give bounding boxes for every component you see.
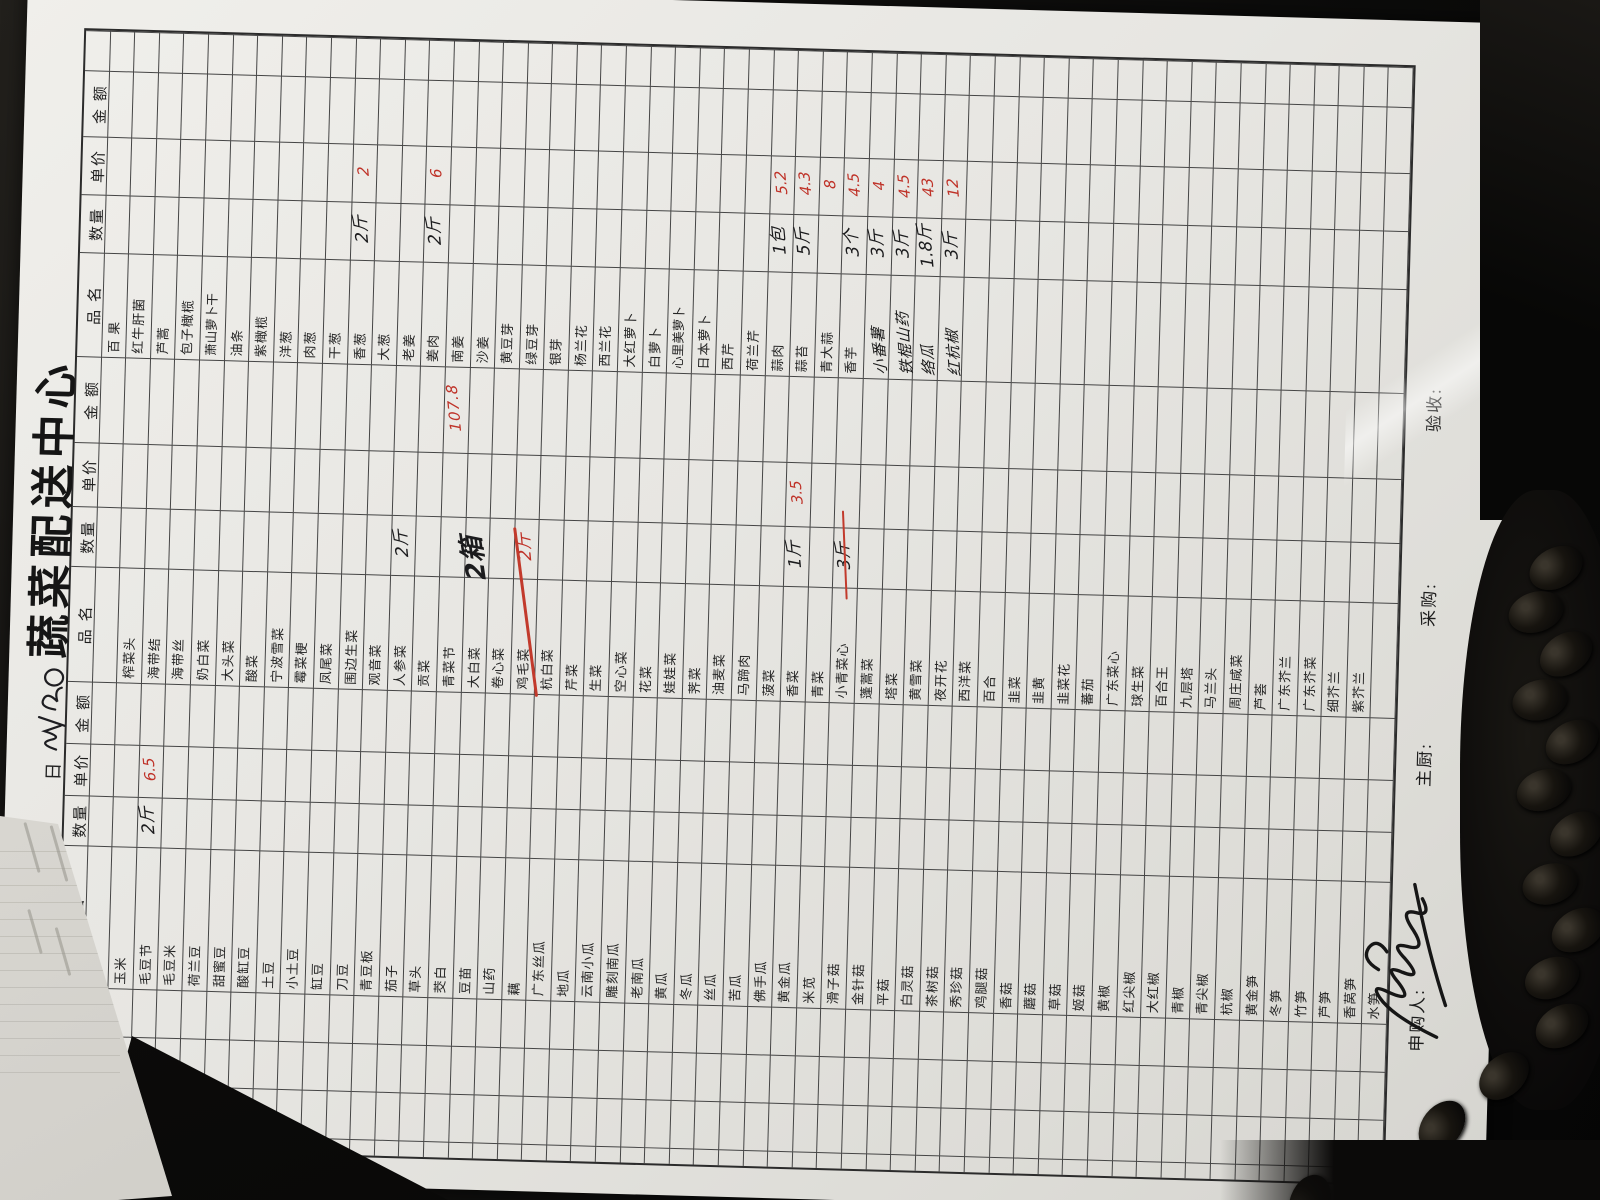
blank-cell bbox=[673, 1004, 699, 1053]
item-name: 蒜苔 bbox=[794, 344, 810, 372]
item-qty-cell bbox=[292, 512, 318, 573]
edge-cell bbox=[355, 38, 381, 79]
blank-cell bbox=[1137, 1113, 1163, 1162]
item-name: 缸豆 bbox=[309, 962, 325, 990]
item-qty-cell bbox=[154, 196, 180, 255]
blank-cell bbox=[375, 1140, 400, 1157]
blank-cell bbox=[796, 1007, 822, 1056]
item-name-cell: 洋葱 bbox=[274, 258, 301, 363]
item-price-cell bbox=[466, 453, 492, 518]
item-price-cell bbox=[1212, 168, 1238, 227]
item-amount-cell bbox=[993, 96, 1019, 163]
item-price-cell bbox=[303, 142, 329, 201]
item-amount-cell bbox=[845, 91, 871, 158]
item-amount-cell bbox=[861, 378, 888, 465]
item-price-cell bbox=[950, 768, 976, 821]
item-amount-cell bbox=[1042, 97, 1068, 164]
item-price-cell bbox=[163, 746, 189, 799]
item-name: 毛豆米 bbox=[162, 944, 178, 986]
item-name: 荷兰豆 bbox=[186, 944, 202, 986]
item-qty-cell bbox=[596, 208, 622, 267]
blank-cell bbox=[129, 1133, 154, 1150]
item-name: 芹菜 bbox=[564, 663, 580, 691]
blank-cell bbox=[105, 1084, 131, 1133]
item-qty-cell bbox=[1202, 538, 1228, 599]
item-name-cell bbox=[1183, 283, 1210, 388]
item-qty-cell: 2箱 bbox=[465, 517, 491, 578]
item-name: 甜蜜豆 bbox=[211, 945, 227, 987]
item-amount-cell bbox=[632, 697, 658, 760]
blank-cell bbox=[252, 1088, 278, 1137]
blank-cell bbox=[1115, 1016, 1141, 1065]
item-name-cell bbox=[1060, 280, 1087, 385]
blank-cell bbox=[547, 1096, 573, 1145]
edge-cell bbox=[257, 35, 283, 76]
item-price-cell bbox=[549, 149, 575, 208]
item-price-cell bbox=[901, 766, 927, 819]
item-name-cell: 芦荟 bbox=[1248, 599, 1276, 715]
item-name-cell: 鸡毛菜 bbox=[511, 578, 539, 694]
item-amount-cell bbox=[747, 89, 773, 156]
item-qty-cell bbox=[506, 807, 532, 858]
item-name: 铁棍山药 bbox=[895, 311, 915, 376]
blank-cell bbox=[990, 1109, 1016, 1158]
item-price-cell bbox=[335, 750, 361, 803]
edge-cell bbox=[1167, 60, 1193, 101]
item-amount-cell bbox=[944, 94, 970, 161]
item-qty-cell bbox=[1030, 533, 1056, 594]
handwritten-amount: 107.8 bbox=[444, 384, 464, 432]
item-amount-cell bbox=[591, 370, 618, 457]
item-name-cell: 干葱 bbox=[323, 259, 350, 364]
item-price-cell bbox=[606, 758, 632, 811]
header-name-cell: 品 名 bbox=[77, 252, 104, 357]
blank-cell bbox=[202, 1135, 227, 1152]
item-qty-cell bbox=[932, 530, 958, 591]
blank-cell bbox=[277, 1089, 303, 1138]
blank-cell bbox=[80, 1131, 105, 1148]
item-price-cell bbox=[909, 465, 935, 530]
item-amount-cell bbox=[812, 377, 839, 464]
item-amount-cell bbox=[386, 690, 412, 753]
blank-cell bbox=[965, 1108, 991, 1157]
item-price-cell bbox=[229, 140, 255, 199]
item-name: 韭黄 bbox=[1031, 676, 1047, 704]
item-price-cell bbox=[180, 139, 206, 198]
blank-cell bbox=[670, 1100, 696, 1149]
blank-cell bbox=[599, 1002, 625, 1051]
item-amount-cell bbox=[99, 357, 126, 444]
blank-cell bbox=[129, 1085, 155, 1134]
photo-scene: { "title": "蔬菜配送中心", "date": {"label": "… bbox=[0, 0, 1600, 1200]
blank-cell bbox=[399, 1140, 424, 1157]
handwritten-price: 6 bbox=[429, 169, 445, 179]
item-name-cell: 心里美萝卜 bbox=[667, 269, 694, 374]
blank-cell bbox=[721, 1053, 747, 1102]
item-name: 杨兰花 bbox=[573, 324, 589, 366]
item-name: 青豆板 bbox=[359, 949, 375, 991]
item-price-cell bbox=[89, 744, 115, 797]
item-amount-cell bbox=[828, 702, 854, 765]
blank-cell bbox=[868, 1057, 894, 1106]
edge-cell bbox=[1118, 59, 1144, 100]
blank-cell bbox=[771, 1007, 797, 1056]
blank-cell bbox=[550, 1001, 576, 1050]
item-qty-cell bbox=[1170, 826, 1196, 877]
item-name-cell: 菠菜 bbox=[756, 585, 784, 701]
item-name: 球生菜 bbox=[1129, 665, 1145, 707]
item-qty-cell: 1包 bbox=[768, 213, 794, 272]
item-price-cell bbox=[278, 142, 304, 201]
item-amount-cell bbox=[960, 381, 987, 468]
item-price-cell bbox=[696, 153, 722, 212]
item-amount-cell bbox=[624, 85, 650, 152]
item-qty-cell bbox=[727, 813, 753, 864]
item-amount-cell bbox=[484, 693, 510, 756]
item-name: 鸡毛菜 bbox=[515, 647, 531, 689]
item-qty-cell bbox=[875, 818, 901, 869]
blank-cell bbox=[843, 1057, 869, 1106]
item-name-cell: 马兰头 bbox=[1199, 598, 1227, 714]
item-name: 藕 bbox=[506, 981, 521, 995]
item-name: 雕刻南瓜 bbox=[604, 942, 621, 998]
edge-cell bbox=[700, 47, 726, 88]
item-amount-cell bbox=[853, 703, 879, 766]
item-qty-cell bbox=[1334, 229, 1360, 288]
item-name: 苦瓜 bbox=[727, 973, 743, 1001]
item-price-cell bbox=[753, 762, 779, 815]
item-amount-cell bbox=[173, 359, 200, 446]
item-price-cell bbox=[1278, 476, 1304, 541]
blank-cell bbox=[498, 1143, 523, 1160]
item-name-cell: 海带结 bbox=[142, 568, 170, 684]
item-name: 榨菜头 bbox=[121, 636, 137, 678]
item-name: 竹笋 bbox=[1293, 989, 1309, 1017]
item-amount-cell bbox=[321, 363, 348, 450]
item-amount-cell bbox=[182, 73, 208, 140]
blank-cell bbox=[671, 1052, 697, 1101]
blank-cell bbox=[450, 1046, 476, 1095]
handwritten-qty: 1.8斤 bbox=[917, 223, 938, 267]
item-amount-cell bbox=[378, 78, 404, 145]
item-name: 米苋 bbox=[801, 975, 817, 1003]
item-name-cell: 香芋 bbox=[839, 273, 866, 378]
blank-cell bbox=[624, 1003, 650, 1052]
item-amount-cell bbox=[673, 87, 699, 154]
item-amount-cell bbox=[206, 74, 232, 141]
desk-shadow-topright bbox=[1480, 0, 1600, 520]
item-price-cell bbox=[507, 755, 533, 808]
item-price-cell bbox=[196, 445, 222, 510]
item-amount-cell bbox=[280, 76, 306, 143]
item-price-cell bbox=[663, 458, 689, 523]
item-amount-cell bbox=[1222, 713, 1248, 776]
item-price-cell bbox=[1130, 472, 1156, 537]
item-price-cell bbox=[360, 751, 386, 804]
item-name: 紫橄榄 bbox=[253, 315, 269, 357]
blank-cell bbox=[1014, 1110, 1040, 1159]
item-amount-cell bbox=[1279, 390, 1306, 477]
item-amount-cell bbox=[607, 696, 633, 759]
item-amount-cell bbox=[1214, 102, 1240, 169]
edge-cell bbox=[110, 31, 136, 72]
item-qty-cell bbox=[400, 203, 426, 262]
item-qty-cell bbox=[1022, 822, 1048, 873]
item-qty-cell bbox=[1186, 225, 1212, 284]
item-qty-cell bbox=[1014, 220, 1040, 279]
edge-cell bbox=[380, 38, 406, 79]
requester-signature bbox=[1316, 834, 1472, 1068]
item-amount-cell bbox=[698, 87, 724, 154]
item-name-cell: 蕃茄 bbox=[1076, 594, 1104, 710]
item-price-cell bbox=[598, 151, 624, 210]
blank-cell bbox=[181, 990, 207, 1039]
item-price-cell bbox=[368, 450, 394, 515]
item-name: 包子橄榄 bbox=[180, 299, 197, 355]
blank-cell bbox=[499, 1047, 525, 1096]
item-qty-cell bbox=[1055, 533, 1081, 594]
item-name: 蘑菇 bbox=[1022, 982, 1038, 1010]
item-name-cell: 蒜苔 bbox=[790, 272, 817, 377]
edge-cell bbox=[921, 53, 947, 94]
blank-cell bbox=[547, 1144, 572, 1161]
item-price-cell bbox=[1327, 477, 1353, 542]
item-price-cell bbox=[1319, 778, 1345, 831]
item-name: 荷兰芹 bbox=[745, 329, 761, 371]
blank-cell bbox=[1189, 1018, 1215, 1067]
item-name: 玉米 bbox=[113, 956, 129, 984]
item-price-cell bbox=[500, 148, 526, 207]
blank-cell bbox=[845, 1009, 871, 1058]
handwritten-qty: 2斤 bbox=[139, 807, 159, 835]
edge-cell bbox=[577, 44, 603, 85]
edge-cell bbox=[970, 55, 996, 96]
item-qty-cell bbox=[105, 195, 131, 254]
item-price-cell bbox=[294, 448, 320, 513]
item-amount-cell bbox=[1000, 707, 1026, 770]
item-name-cell: 包子橄榄 bbox=[175, 255, 202, 360]
item-name: 红尖椒 bbox=[1121, 970, 1137, 1012]
item-amount-cell bbox=[419, 366, 446, 453]
item-amount-cell bbox=[1140, 100, 1166, 167]
blank-cell bbox=[1140, 1017, 1166, 1066]
item-price-cell bbox=[270, 447, 296, 512]
item-name: 山药 bbox=[481, 967, 497, 995]
item-qty-cell bbox=[277, 200, 303, 259]
item-amount-cell bbox=[337, 688, 363, 751]
item-name-cell: 大白菜 bbox=[461, 577, 489, 693]
item-name-cell: 夜开花 bbox=[928, 590, 956, 706]
item-name: 卷心菜 bbox=[490, 647, 506, 689]
blank-cell bbox=[524, 1048, 550, 1097]
blank-cell bbox=[473, 1142, 498, 1159]
item-qty-cell bbox=[555, 809, 581, 860]
item-amount-cell bbox=[665, 372, 692, 459]
item-qty-cell bbox=[981, 531, 1007, 592]
item-name-cell: 广东芥菜 bbox=[1297, 600, 1325, 716]
edge-cell bbox=[798, 50, 824, 91]
item-name-cell bbox=[1159, 282, 1186, 387]
edge-cell bbox=[1388, 67, 1414, 108]
item-qty-cell bbox=[760, 525, 786, 586]
item-qty-cell bbox=[129, 195, 155, 254]
item-qty-cell bbox=[1047, 822, 1073, 873]
item-name-cell: 百 果 bbox=[102, 253, 129, 358]
handwritten-qty: 1斤 bbox=[786, 541, 806, 569]
blank-cell bbox=[819, 1056, 845, 1105]
item-price-cell bbox=[810, 463, 836, 528]
item-name: 宁波雪菜 bbox=[269, 627, 286, 683]
item-amount-cell bbox=[493, 368, 520, 455]
item-name-cell bbox=[962, 277, 989, 382]
blank-cell bbox=[304, 994, 330, 1043]
item-name: 广东芥兰 bbox=[1277, 655, 1294, 711]
item-name: 杭椒 bbox=[1219, 987, 1235, 1015]
item-qty-cell bbox=[178, 197, 204, 256]
item-name-cell: 马蹄肉 bbox=[732, 584, 760, 700]
item-qty-cell: 5斤 bbox=[793, 214, 819, 273]
item-amount-cell bbox=[1067, 98, 1093, 165]
item-amount-cell bbox=[772, 89, 798, 156]
item-qty-cell bbox=[710, 524, 736, 585]
item-amount-cell bbox=[689, 373, 716, 460]
item-qty-cell bbox=[309, 802, 335, 853]
blank-cell bbox=[1088, 1112, 1114, 1161]
item-qty-cell bbox=[1063, 222, 1089, 281]
blank-cell bbox=[155, 1037, 181, 1086]
item-qty-cell bbox=[162, 798, 188, 849]
item-qty-cell bbox=[587, 520, 613, 581]
item-price-cell bbox=[1196, 774, 1222, 827]
item-name: 黄瓜 bbox=[654, 971, 670, 999]
item-price-cell bbox=[1048, 770, 1074, 823]
blank-cell bbox=[230, 992, 256, 1041]
item-amount-cell bbox=[238, 686, 264, 749]
item-name: 小番薯 bbox=[871, 326, 890, 375]
item-name: 大红椒 bbox=[1145, 971, 1161, 1013]
item-name: 霉菜梗 bbox=[293, 641, 309, 683]
item-name-cell: 人参菜 bbox=[388, 575, 416, 691]
item-qty-cell bbox=[907, 529, 933, 590]
blank-cell bbox=[697, 1005, 723, 1054]
item-name-cell: 广东芥兰 bbox=[1273, 600, 1301, 716]
item-price-cell bbox=[475, 147, 501, 206]
item-qty-cell bbox=[703, 813, 729, 864]
blank-cell bbox=[353, 995, 379, 1044]
blank-cell bbox=[80, 1083, 106, 1132]
item-amount-cell bbox=[788, 376, 815, 463]
header-amount-cell: 金 额 bbox=[75, 356, 102, 443]
item-price-cell bbox=[1163, 166, 1189, 225]
item-name-cell bbox=[1233, 284, 1260, 389]
item-name: 空心菜 bbox=[613, 650, 629, 692]
item-name-cell: 韭菜 bbox=[1002, 592, 1030, 708]
item-price-cell bbox=[1056, 469, 1082, 534]
item-qty-cell bbox=[211, 799, 237, 850]
blank-cell bbox=[378, 996, 404, 1045]
item-amount-cell bbox=[919, 93, 945, 160]
item-price-cell bbox=[761, 461, 787, 526]
item-amount-cell bbox=[976, 706, 1002, 769]
item-price-cell bbox=[409, 752, 435, 805]
handwritten-price: 4.3 bbox=[797, 172, 814, 196]
blank-cell bbox=[1164, 1018, 1190, 1067]
item-price-cell bbox=[254, 141, 280, 200]
item-name: 毛豆节 bbox=[137, 943, 153, 985]
item-qty-cell bbox=[612, 521, 638, 582]
item-amount-cell bbox=[984, 381, 1011, 468]
item-qty-cell bbox=[882, 529, 908, 590]
handwritten-qty: 1包 bbox=[770, 227, 790, 255]
blank-cell bbox=[1066, 1015, 1092, 1064]
item-name: 马兰头 bbox=[1203, 667, 1219, 709]
item-amount-cell bbox=[1246, 714, 1272, 777]
item-name-cell: 萧山萝卜干 bbox=[200, 255, 227, 360]
item-price-cell bbox=[745, 155, 771, 214]
item-amount-cell bbox=[296, 362, 323, 449]
item-qty-cell: 3斤 bbox=[867, 216, 893, 275]
item-amount-cell bbox=[1386, 107, 1412, 174]
blank-cell bbox=[1311, 1070, 1337, 1119]
item-amount-cell bbox=[951, 706, 977, 769]
blank-cell bbox=[1041, 1014, 1067, 1063]
handwritten-qty: 3个 bbox=[844, 229, 864, 257]
blank-cell bbox=[670, 1148, 695, 1165]
handwritten-price: 8 bbox=[822, 180, 838, 190]
item-qty-cell bbox=[375, 202, 401, 261]
item-price-cell bbox=[737, 461, 763, 526]
blank-cell bbox=[869, 1009, 895, 1058]
item-qty-cell bbox=[1153, 536, 1179, 597]
item-price-cell bbox=[245, 447, 271, 512]
item-name: 平菇 bbox=[875, 978, 891, 1006]
item-price-cell bbox=[1065, 164, 1091, 223]
item-name: 百合王 bbox=[1154, 665, 1170, 707]
item-price-cell bbox=[581, 757, 607, 810]
item-qty-cell bbox=[334, 802, 360, 853]
blank-cell bbox=[1287, 1021, 1313, 1070]
item-amount-cell bbox=[148, 358, 175, 445]
item-price-cell bbox=[630, 759, 656, 812]
item-qty-cell bbox=[1104, 535, 1130, 596]
item-qty-cell bbox=[735, 524, 761, 585]
item-name-cell: 观音菜 bbox=[363, 574, 391, 690]
blank-cell bbox=[131, 1037, 157, 1086]
item-name: 广东菜心 bbox=[1105, 650, 1122, 706]
item-name: 南姜 bbox=[450, 334, 466, 362]
item-name-cell: 沙姜 bbox=[470, 263, 497, 368]
item-name: 大头菜 bbox=[220, 639, 236, 681]
item-price-cell bbox=[1286, 170, 1312, 229]
item-name: 金针菇 bbox=[850, 963, 866, 1005]
blank-cell bbox=[966, 1060, 992, 1109]
item-qty-cell bbox=[1260, 227, 1286, 286]
item-qty-cell bbox=[186, 798, 212, 849]
item-name-cell: 绿豆芽 bbox=[520, 264, 547, 369]
header-name-cell: 品 名 bbox=[68, 566, 96, 682]
item-qty-cell bbox=[965, 219, 991, 278]
item-price-cell bbox=[1262, 169, 1288, 228]
item-price-cell bbox=[1335, 171, 1361, 230]
item-price-cell bbox=[343, 450, 369, 515]
item-qty-cell bbox=[498, 206, 524, 265]
item-price-cell bbox=[1245, 776, 1271, 829]
item-qty-cell bbox=[818, 215, 844, 274]
item-amount-cell bbox=[1353, 392, 1380, 479]
edge-cell bbox=[749, 49, 775, 90]
item-qty-cell bbox=[1374, 542, 1400, 603]
item-name-cell bbox=[1134, 282, 1161, 387]
